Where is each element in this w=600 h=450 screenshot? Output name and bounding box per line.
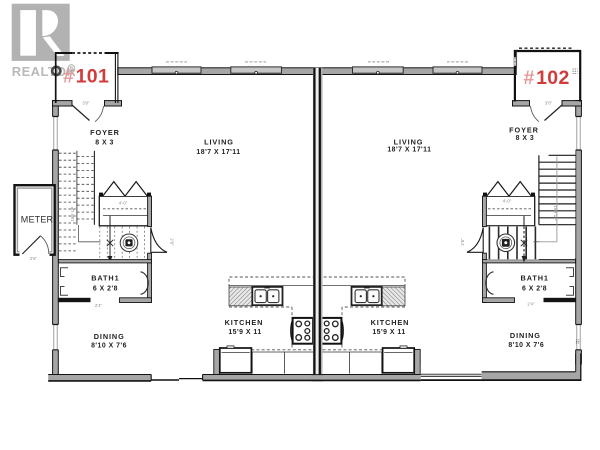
svg-text:3'0": 3'0"	[545, 101, 553, 106]
svg-text:8 X 3: 8 X 3	[516, 135, 535, 142]
svg-text:4'-0": 4'-0"	[119, 200, 128, 205]
svg-text:6 X 2'8: 6 X 2'8	[522, 286, 547, 293]
svg-text:#102: #102	[524, 67, 570, 89]
svg-text:KITCHEN: KITCHEN	[371, 318, 410, 327]
svg-text:15'9 X 11: 15'9 X 11	[372, 329, 405, 336]
svg-text:#101: #101	[63, 66, 109, 88]
svg-text:METER: METER	[21, 214, 54, 224]
svg-text:KITCHEN: KITCHEN	[225, 318, 264, 327]
svg-text:8'10 X 7'6: 8'10 X 7'6	[508, 342, 544, 349]
svg-text:3'0": 3'0"	[82, 101, 90, 106]
svg-text:BATH1: BATH1	[91, 274, 119, 283]
svg-text:4'-0": 4'-0"	[503, 199, 512, 204]
svg-text:18'7 X 17'11: 18'7 X 17'11	[196, 149, 240, 156]
svg-text:LIVING: LIVING	[204, 138, 234, 147]
svg-text:16R UP: 16R UP	[553, 205, 558, 220]
svg-text:2'6": 2'6"	[30, 256, 38, 261]
svg-text:2'4": 2'4"	[95, 303, 103, 308]
svg-text:LIVING: LIVING	[394, 137, 424, 146]
svg-text:2'6": 2'6"	[170, 238, 175, 246]
svg-text:BATH1: BATH1	[521, 274, 549, 283]
svg-text:8 X 3: 8 X 3	[95, 140, 114, 147]
svg-text:FOYER: FOYER	[90, 128, 120, 137]
svg-text:15'9 X 11: 15'9 X 11	[228, 329, 261, 336]
svg-text:FOYER: FOYER	[509, 126, 539, 135]
svg-text:6 X 2'8: 6 X 2'8	[93, 286, 118, 293]
svg-text:DINING: DINING	[510, 331, 541, 340]
svg-text:2'4": 2'4"	[527, 301, 535, 306]
svg-text:18'7 X 17'11: 18'7 X 17'11	[387, 147, 431, 154]
svg-text:16R UP: 16R UP	[70, 206, 75, 221]
svg-text:2'6": 2'6"	[460, 238, 465, 246]
svg-text:8'10 X 7'6: 8'10 X 7'6	[91, 343, 127, 350]
svg-text:DINING: DINING	[94, 332, 125, 341]
